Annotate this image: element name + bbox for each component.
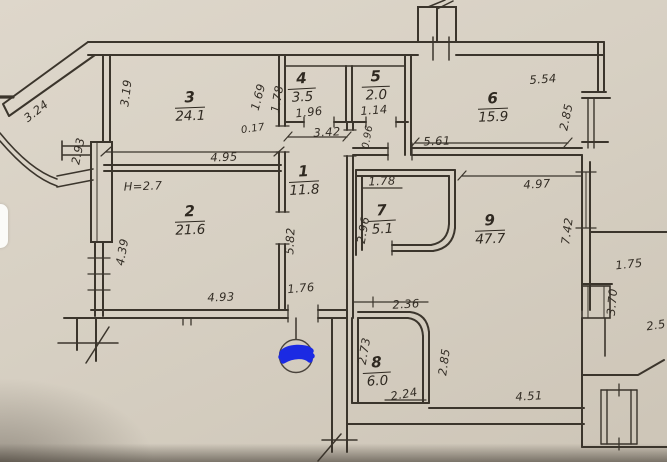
room-area: 6.0 (363, 372, 392, 389)
floor-plan-scan: 1 11.8 2 21.6 3 24.1 4 3.5 5 2.0 6 15.9 … (0, 0, 667, 462)
room-label-9: 9 47.7 (474, 213, 505, 248)
note-ceiling-height: H=2.7 (123, 178, 162, 193)
dim-room2-bottom: 4.93 (207, 290, 235, 305)
room-number: 5 (361, 69, 390, 88)
room-number: 4 (287, 70, 316, 89)
room-label-6: 6 15.9 (477, 91, 508, 126)
dim-room7-top: 1.78 (368, 174, 396, 189)
room-number: 6 (477, 91, 508, 110)
room-area: 3.5 (288, 88, 317, 105)
dim-room4-width: 1.96 (295, 104, 324, 121)
blue-pen-scribble (281, 347, 312, 361)
blue-marker (280, 340, 313, 373)
dim-hall-right: 5.61 (423, 134, 451, 149)
dim-room3-width: 4.95 (210, 150, 238, 165)
dim-room9-top: 4.97 (523, 176, 551, 191)
dim-room6-width: 5.54 (529, 71, 557, 87)
room-area: 11.8 (289, 181, 320, 198)
room-number: 1 (288, 163, 319, 182)
room-label-3: 3 24.1 (174, 90, 205, 125)
room-area: 21.6 (175, 221, 206, 238)
room-area: 2.0 (362, 86, 391, 103)
dim-edge-partial: 2.5 (645, 317, 666, 334)
dim-room9-bottom: 4.51 (515, 388, 543, 403)
room-label-1: 1 11.8 (288, 163, 320, 198)
dim-annex-height: 3.70 (604, 288, 620, 316)
windows (62, 98, 637, 450)
chimney-shaft (418, 0, 456, 60)
dim-room5-width: 1.14 (360, 102, 388, 118)
room-area: 15.9 (478, 108, 509, 125)
dim-annex-width: 1.75 (615, 256, 644, 273)
dim-hall-door: 1.76 (287, 280, 315, 296)
dim-hall-left: 5.82 (282, 227, 297, 255)
dimension-lines (101, 132, 581, 400)
room-number: 9 (474, 213, 505, 232)
scan-edge-artifact (0, 204, 8, 248)
room-label-4: 4 3.5 (287, 70, 317, 105)
room-label-2: 2 21.6 (174, 204, 205, 239)
dim-hall-top: 3.42 (313, 124, 341, 139)
room-area: 24.1 (175, 107, 206, 124)
room-number: 2 (174, 204, 205, 223)
room-area: 47.7 (475, 230, 506, 247)
dim-room8-top: 2.36 (392, 296, 420, 311)
inner-walls (91, 55, 582, 325)
room-label-5: 5 2.0 (361, 69, 391, 104)
room-area: 5.1 (368, 220, 397, 237)
room-number: 3 (174, 90, 205, 109)
